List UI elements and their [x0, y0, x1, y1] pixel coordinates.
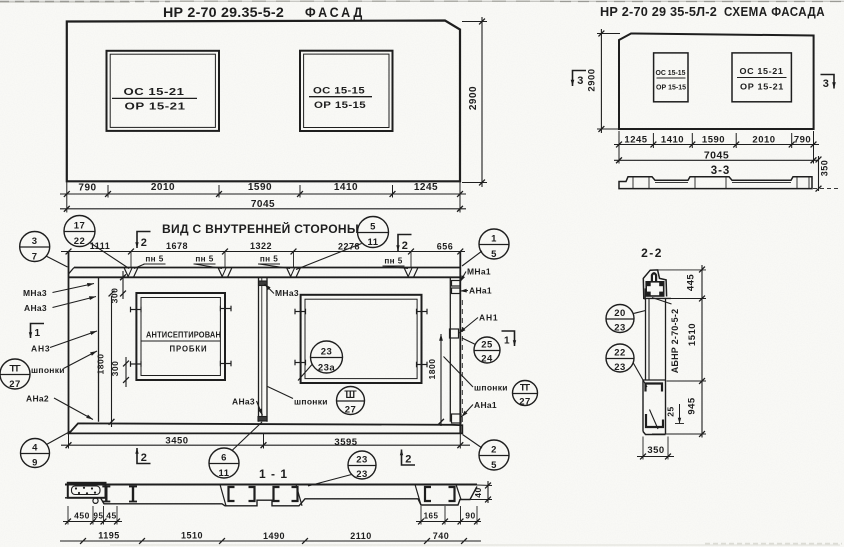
svg-text:2900: 2900 — [468, 86, 479, 110]
svg-text:40: 40 — [473, 487, 483, 497]
svg-text:3-3: 3-3 — [711, 165, 731, 177]
svg-text:656: 656 — [437, 242, 454, 252]
svg-text:350: 350 — [647, 445, 664, 456]
svg-text:1: 1 — [491, 234, 497, 245]
svg-text:ОР 15-15: ОР 15-15 — [314, 100, 366, 110]
svg-text:1510: 1510 — [181, 531, 203, 541]
svg-text:25: 25 — [481, 340, 493, 351]
svg-text:АНа1: АНа1 — [474, 400, 497, 410]
svg-text:165: 165 — [424, 512, 439, 521]
svg-text:АНа2: АНа2 — [26, 394, 49, 404]
svg-text:СХЕМА ФАСАДА: СХЕМА ФАСАДА — [724, 4, 825, 19]
svg-text:5: 5 — [491, 460, 497, 471]
svg-text:11: 11 — [367, 237, 378, 248]
svg-text:ФАСАД: ФАСАД — [305, 5, 365, 20]
svg-text:1245: 1245 — [624, 135, 647, 146]
svg-text:пн 5: пн 5 — [145, 255, 163, 264]
svg-text:24: 24 — [481, 354, 493, 365]
svg-text:АН1: АН1 — [479, 313, 498, 323]
svg-text:7045: 7045 — [704, 150, 729, 162]
svg-text:4: 4 — [32, 443, 38, 454]
svg-text:пн 5: пн 5 — [260, 255, 278, 264]
svg-text:3: 3 — [32, 236, 38, 247]
svg-text:1800: 1800 — [427, 359, 437, 380]
svg-text:3450: 3450 — [165, 435, 188, 446]
svg-text:7045: 7045 — [251, 199, 275, 210]
svg-text:Ш: Ш — [345, 390, 355, 401]
svg-text:АБНР 2-70-5-2: АБНР 2-70-5-2 — [670, 309, 680, 374]
svg-text:300: 300 — [109, 288, 119, 304]
svg-text:ОС 15-21: ОС 15-21 — [124, 87, 185, 98]
svg-text:2: 2 — [402, 240, 409, 252]
svg-text:ОР 15-21: ОР 15-21 — [740, 82, 784, 92]
svg-text:445: 445 — [686, 274, 697, 292]
svg-text:1195: 1195 — [98, 531, 120, 541]
svg-text:1410: 1410 — [661, 135, 684, 146]
svg-text:2010: 2010 — [151, 182, 175, 193]
svg-text:2: 2 — [405, 454, 412, 466]
svg-text:11: 11 — [218, 468, 229, 479]
svg-text:20: 20 — [614, 308, 626, 319]
svg-text:ОС 15-15: ОС 15-15 — [656, 68, 687, 77]
svg-text:ОС 15-21: ОС 15-21 — [740, 66, 784, 76]
svg-text:АНа3: АНа3 — [232, 397, 255, 407]
svg-text:23: 23 — [614, 323, 626, 334]
svg-text:23а: 23а — [318, 362, 336, 373]
svg-text:9: 9 — [32, 457, 38, 468]
svg-text:АНа3: АНа3 — [24, 303, 47, 313]
svg-text:23: 23 — [356, 469, 368, 480]
svg-text:945: 945 — [687, 397, 698, 415]
svg-text:1 - 1: 1 - 1 — [259, 467, 288, 481]
svg-text:27: 27 — [345, 405, 357, 416]
svg-text:45: 45 — [106, 511, 116, 521]
svg-text:2900: 2900 — [587, 68, 598, 91]
svg-text:1410: 1410 — [334, 182, 358, 193]
svg-text:1245: 1245 — [414, 182, 438, 193]
svg-text:2: 2 — [141, 237, 148, 249]
svg-text:1590: 1590 — [248, 182, 272, 193]
svg-text:1678: 1678 — [166, 241, 188, 251]
svg-text:3: 3 — [577, 75, 584, 87]
svg-text:740: 740 — [433, 531, 450, 541]
svg-text:АНТИСЕПТИРОВАН: АНТИСЕПТИРОВАН — [146, 330, 221, 340]
svg-text:3: 3 — [823, 78, 830, 90]
svg-text:790: 790 — [794, 135, 811, 146]
svg-text:3595: 3595 — [334, 437, 357, 448]
svg-text:22: 22 — [74, 236, 86, 247]
svg-text:ОР 15-21: ОР 15-21 — [125, 102, 186, 113]
svg-text:ОР 15-15: ОР 15-15 — [656, 83, 687, 92]
svg-text:НР 2-70 29.35-5-2: НР 2-70 29.35-5-2 — [163, 5, 284, 20]
svg-text:17: 17 — [74, 221, 86, 232]
svg-text:23: 23 — [614, 362, 626, 373]
svg-text:1: 1 — [504, 336, 510, 347]
svg-text:7: 7 — [32, 251, 38, 262]
svg-text:МНа3: МНа3 — [23, 288, 47, 298]
svg-text:пн 5: пн 5 — [384, 257, 402, 266]
svg-text:пн 5: пн 5 — [195, 255, 213, 264]
svg-text:шпонки: шпонки — [31, 365, 65, 375]
svg-text:1510: 1510 — [687, 323, 698, 346]
svg-text:23: 23 — [356, 455, 368, 466]
svg-text:2: 2 — [141, 452, 148, 464]
svg-text:350: 350 — [820, 160, 830, 177]
svg-text:95: 95 — [94, 512, 104, 521]
svg-text:2: 2 — [491, 445, 497, 456]
svg-text:ОС 15-15: ОС 15-15 — [313, 86, 365, 96]
svg-text:шпонки: шпонки — [474, 383, 508, 393]
svg-text:790: 790 — [78, 183, 96, 194]
svg-text:27: 27 — [9, 379, 21, 390]
svg-text:450: 450 — [74, 511, 90, 521]
svg-text:300: 300 — [110, 361, 120, 377]
svg-text:2110: 2110 — [350, 531, 372, 541]
svg-text:1322: 1322 — [250, 241, 272, 251]
svg-text:5: 5 — [370, 222, 376, 233]
svg-text:АН3: АН3 — [31, 344, 50, 354]
svg-text:90: 90 — [465, 511, 475, 521]
svg-text:АНа1: АНа1 — [469, 286, 492, 296]
svg-text:ПРОБКИ: ПРОБКИ — [170, 344, 208, 354]
svg-text:1490: 1490 — [263, 531, 285, 541]
svg-text:НР 2-70 29 35-5Л-2: НР 2-70 29 35-5Л-2 — [600, 4, 717, 19]
svg-text:23: 23 — [321, 347, 333, 358]
svg-text:шпонки: шпонки — [294, 397, 328, 407]
svg-text:1590: 1590 — [702, 135, 725, 146]
svg-text:2278: 2278 — [338, 242, 360, 252]
svg-text:МНа3: МНа3 — [275, 288, 299, 298]
svg-text:1: 1 — [34, 328, 40, 339]
svg-text:22: 22 — [614, 348, 626, 359]
svg-text:6: 6 — [221, 453, 227, 464]
svg-text:25: 25 — [666, 406, 676, 416]
svg-text:1800: 1800 — [96, 354, 106, 375]
svg-text:27: 27 — [519, 396, 531, 407]
svg-text:2-2: 2-2 — [641, 246, 663, 260]
svg-text:ВИД С ВНУТРЕННЕЙ СТОРОНЫ: ВИД С ВНУТРЕННЕЙ СТОРОНЫ — [162, 222, 359, 236]
svg-text:5: 5 — [491, 249, 497, 260]
svg-text:2010: 2010 — [752, 135, 775, 146]
svg-text:МНа1: МНа1 — [467, 267, 491, 277]
